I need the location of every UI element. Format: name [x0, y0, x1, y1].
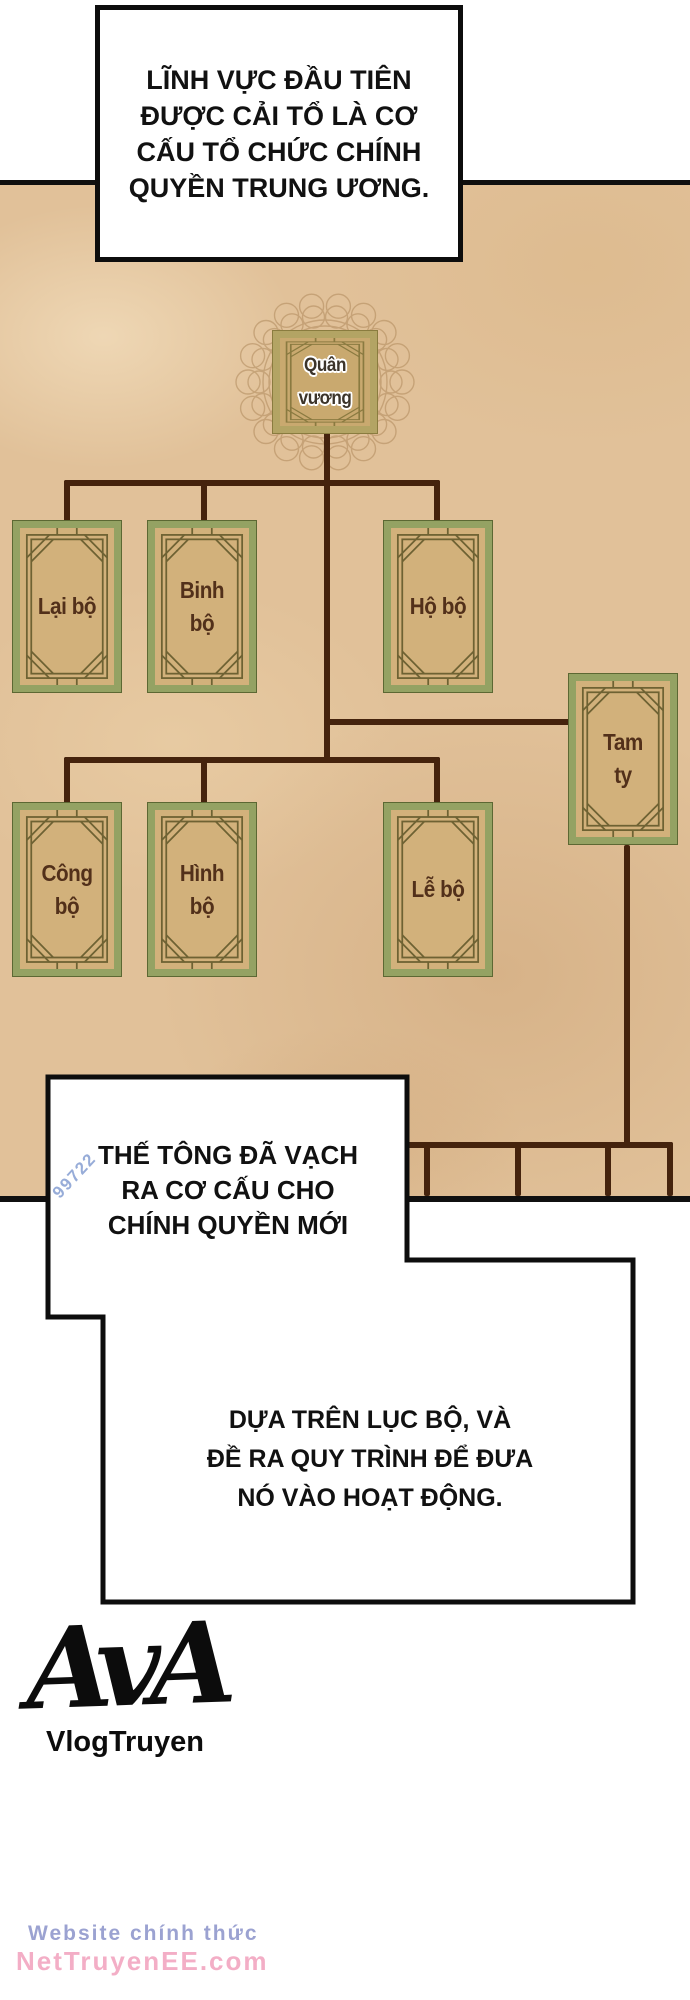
connector-drop-lai-bo: [64, 480, 70, 522]
org-node-binh-bo: Binh bộ: [147, 520, 257, 693]
speech-line: LĨNH VỰC ĐẦU TIÊN: [129, 62, 429, 98]
connector-drop-hinh-bo: [201, 757, 207, 804]
logo-brand-text: AvA: [13, 1604, 237, 1730]
org-node-ho-bo: Hộ bộ: [383, 520, 493, 693]
org-node-label: Quân vương: [278, 331, 372, 433]
speech-line: NÓ VÀO HOẠT ĐỘNG.: [110, 1479, 630, 1518]
org-node-label: Công bộ: [18, 803, 115, 976]
org-node-label: Lễ bộ: [389, 803, 486, 976]
org-node-quan-vuong: Quân vương: [272, 330, 378, 434]
speech-line: CHÍNH QUYỀN MỚI: [52, 1208, 404, 1243]
speech-line: ĐỀ RA QUY TRÌNH ĐỂ ĐƯA: [110, 1440, 630, 1479]
connector-drop-ho-bo: [434, 480, 440, 522]
site-watermark-line2: NetTruyenEE.com: [16, 1946, 269, 1977]
speech-text-top: LĨNH VỰC ĐẦU TIÊN ĐƯỢC CẢI TỔ LÀ CƠ CẤU …: [129, 62, 429, 206]
connector-row1-bar: [64, 480, 440, 486]
org-node-label: Hình bộ: [153, 803, 250, 976]
org-node-label: Binh bộ: [153, 521, 250, 692]
org-node-label: Lại bộ: [18, 521, 115, 692]
org-node-hinh-bo: Hình bộ: [147, 802, 257, 977]
org-node-tam-ty: Tam ty: [568, 673, 678, 845]
connector-drop-binh-bo: [201, 480, 207, 522]
comic-page: Quân vương Lại bộ Binh bộ Hộ bộ Tam ty C…: [0, 0, 690, 2000]
org-node-le-bo: Lễ bộ: [383, 802, 493, 977]
connector-drop-le-bo: [434, 757, 440, 804]
speech-line: CẤU TỔ CHỨC CHÍNH: [129, 134, 429, 170]
org-node-lai-bo: Lại bộ: [12, 520, 122, 693]
org-node-cong-bo: Công bộ: [12, 802, 122, 977]
speech-text-lower-right: DỰA TRÊN LỤC BỘ, VÀ ĐỀ RA QUY TRÌNH ĐỂ Đ…: [110, 1401, 630, 1518]
site-watermark-line1: Website chính thức: [28, 1922, 259, 1946]
speech-line: THẾ TÔNG ĐÃ VẠCH: [52, 1138, 404, 1173]
speech-line: QUYỀN TRUNG ƯƠNG.: [129, 170, 429, 206]
connector-root-stem: [324, 432, 330, 484]
connector-drop-cong-bo: [64, 757, 70, 804]
connector-sub-branch-4: [667, 1142, 673, 1196]
connector-branch-tam-ty: [327, 719, 570, 725]
speech-text-lower-left: THẾ TÔNG ĐÃ VẠCH RA CƠ CẤU CHO CHÍNH QUY…: [52, 1138, 404, 1243]
speech-line: ĐƯỢC CẢI TỔ LÀ CƠ: [129, 98, 429, 134]
speech-box-top: LĨNH VỰC ĐẦU TIÊN ĐƯỢC CẢI TỔ LÀ CƠ CẤU …: [95, 5, 463, 262]
connector-row2-bar: [64, 757, 440, 763]
org-node-label: Hộ bộ: [389, 521, 486, 692]
speech-line: DỰA TRÊN LỤC BỘ, VÀ: [110, 1401, 630, 1440]
translator-logo: AvA VlogTruyen: [15, 1608, 235, 1759]
org-node-label: Tam ty: [574, 674, 671, 844]
speech-line: RA CƠ CẤU CHO: [52, 1173, 404, 1208]
